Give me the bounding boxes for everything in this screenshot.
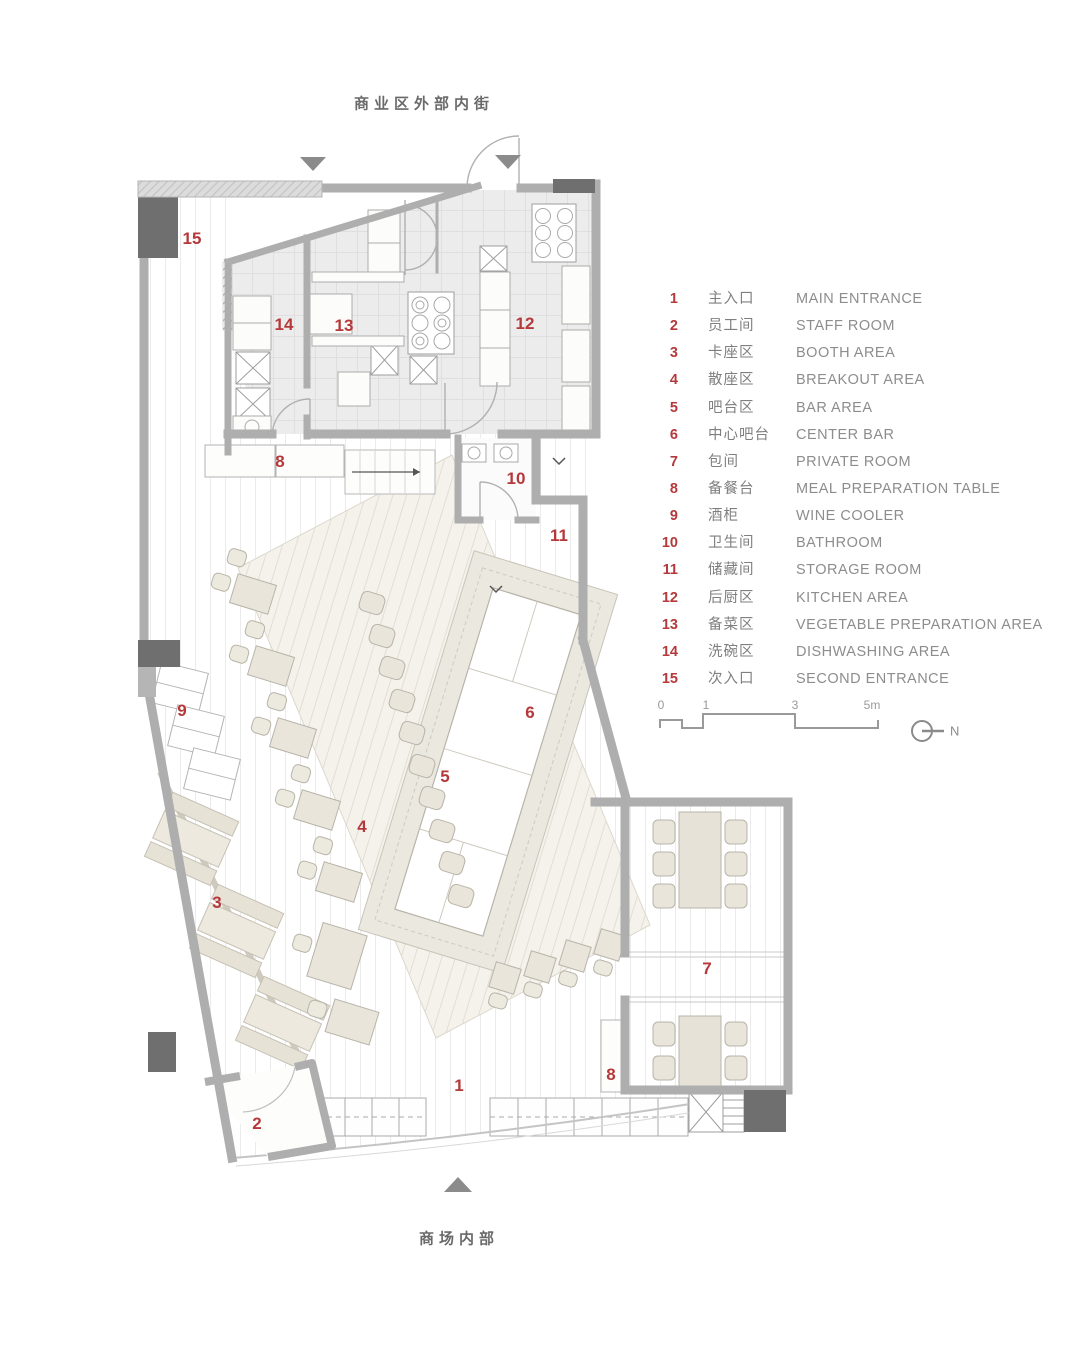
legend-row: 10卫生间BATHROOM [656, 531, 883, 553]
bottom-mall-label: 商场内部 [419, 1228, 499, 1249]
legend-number: 11 [656, 562, 678, 578]
stove [532, 204, 576, 262]
plan-label-10: 10 [507, 469, 526, 489]
legend-number: 13 [656, 617, 678, 633]
plan-label-14: 14 [275, 315, 294, 335]
legend-en-label: BAR AREA [796, 400, 873, 416]
legend-row: 11储藏间STORAGE ROOM [656, 558, 922, 580]
plan-label-1: 1 [454, 1076, 463, 1096]
legend-zh-label: 备菜区 [708, 613, 796, 634]
legend-row: 5吧台区BAR AREA [656, 396, 873, 418]
legend-row: 7包间PRIVATE ROOM [656, 450, 911, 472]
plan-label-7: 7 [702, 959, 711, 979]
entrance-mat [689, 1092, 744, 1132]
legend-zh-label: 卡座区 [708, 341, 796, 362]
legend-number: 14 [656, 644, 678, 660]
stairs [345, 450, 435, 494]
legend-row: 2员工间STAFF ROOM [656, 314, 895, 336]
legend-zh-label: 储藏间 [708, 558, 796, 579]
legend-row: 3卡座区BOOTH AREA [656, 341, 895, 363]
plan-label-5: 5 [440, 767, 449, 787]
legend-zh-label: 次入口 [708, 667, 796, 688]
legend-en-label: WINE COOLER [796, 508, 905, 524]
legend-zh-label: 散座区 [708, 368, 796, 389]
arrow-up-icon [444, 1177, 472, 1192]
legend-row: 13备菜区VEGETABLE PREPARATION AREA [656, 613, 1043, 635]
scale-tick-3: 3 [792, 698, 799, 712]
legend-number: 10 [656, 535, 678, 551]
plan-label-13: 13 [335, 316, 354, 336]
legend-number: 7 [656, 454, 678, 470]
legend-zh-label: 吧台区 [708, 396, 796, 417]
legend-en-label: DISHWASHING AREA [796, 644, 950, 660]
scale-tick-0: 0 [658, 698, 665, 712]
legend-number: 5 [656, 400, 678, 416]
plan-label-15: 15 [183, 229, 202, 249]
plan-label-6: 6 [525, 703, 534, 723]
legend-number: 4 [656, 372, 678, 388]
plan-label-8b: 8 [606, 1065, 615, 1085]
legend-zh-label: 员工间 [708, 314, 796, 335]
plan-label-3: 3 [212, 893, 221, 913]
legend-number: 3 [656, 345, 678, 361]
floor-plan-page: 商业区外部内街 商场内部 15 14 13 12 8 10 11 9 6 5 4… [0, 0, 1080, 1349]
legend-en-label: MEAL PREPARATION TABLE [796, 481, 1000, 497]
legend-zh-label: 酒柜 [708, 504, 796, 525]
top-street-label: 商业区外部内街 [354, 93, 494, 114]
legend-en-label: SECOND ENTRANCE [796, 671, 949, 687]
legend-row: 8备餐台MEAL PREPARATION TABLE [656, 477, 1000, 499]
scale-tick-5m: 5m [864, 698, 881, 712]
legend-zh-label: 后厨区 [708, 586, 796, 607]
legend-number: 15 [656, 671, 678, 687]
legend-number: 2 [656, 318, 678, 334]
plan-label-12: 12 [516, 314, 535, 334]
legend-en-label: STORAGE ROOM [796, 562, 922, 578]
legend-zh-label: 洗碗区 [708, 640, 796, 661]
legend-number: 1 [656, 291, 678, 307]
legend-en-label: PRIVATE ROOM [796, 454, 911, 470]
north-label: N [950, 724, 959, 739]
plan-label-8a: 8 [275, 452, 284, 472]
legend-number: 9 [656, 508, 678, 524]
legend-row: 9酒柜WINE COOLER [656, 504, 905, 526]
legend-en-label: BOOTH AREA [796, 345, 895, 361]
legend-en-label: BATHROOM [796, 535, 883, 551]
scale-bar [660, 714, 878, 728]
legend-row: 14洗碗区DISHWASHING AREA [656, 640, 950, 662]
north-arrow-icon [912, 721, 944, 741]
legend-row: 12后厨区KITCHEN AREA [656, 586, 908, 608]
plan-label-11: 11 [550, 526, 568, 546]
plan-label-2: 2 [252, 1114, 261, 1134]
scale-tick-1: 1 [703, 698, 710, 712]
legend-zh-label: 包间 [708, 450, 796, 471]
legend-row: 1主入口MAIN ENTRANCE [656, 287, 923, 309]
plan-label-9: 9 [177, 701, 186, 721]
legend-row: 15次入口SECOND ENTRANCE [656, 667, 949, 689]
legend-en-label: MAIN ENTRANCE [796, 291, 923, 307]
legend-zh-label: 中心吧台 [708, 423, 796, 444]
legend-zh-label: 主入口 [708, 287, 796, 308]
legend-number: 6 [656, 427, 678, 443]
legend-en-label: CENTER BAR [796, 427, 894, 443]
plan-label-4: 4 [357, 817, 366, 837]
arrow-down-icon [495, 155, 521, 169]
legend-en-label: STAFF ROOM [796, 318, 895, 334]
legend-en-label: BREAKOUT AREA [796, 372, 925, 388]
legend-en-label: VEGETABLE PREPARATION AREA [796, 617, 1043, 633]
stove [408, 292, 454, 354]
legend-number: 8 [656, 481, 678, 497]
legend-zh-label: 卫生间 [708, 531, 796, 552]
legend-en-label: KITCHEN AREA [796, 590, 908, 606]
legend-zh-label: 备餐台 [708, 477, 796, 498]
arrow-down-icon [300, 157, 326, 171]
legend-number: 12 [656, 590, 678, 606]
legend-row: 6中心吧台CENTER BAR [656, 423, 894, 445]
legend-row: 4散座区BREAKOUT AREA [656, 368, 925, 390]
